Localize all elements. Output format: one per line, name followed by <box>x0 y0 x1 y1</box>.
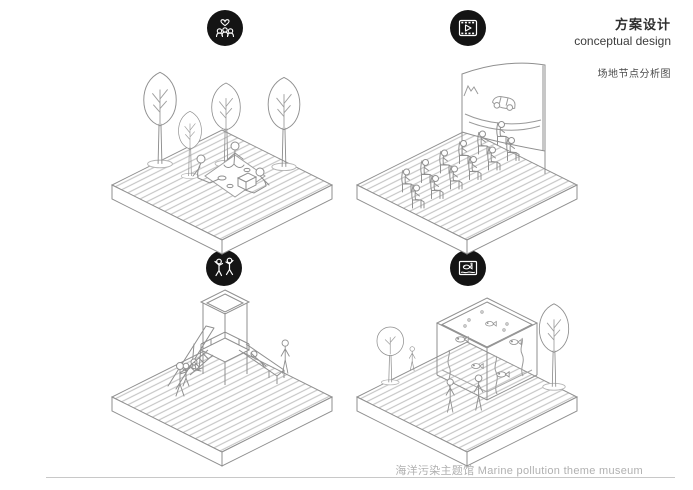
tree-right <box>539 304 568 390</box>
cinema-illustration <box>347 50 587 255</box>
page-title-en: conceptual design <box>574 34 671 48</box>
footer-rule <box>46 477 675 478</box>
diagram-type-label: 场地节点分析图 <box>574 65 671 80</box>
footer-caption: 海洋污染主题馆 Marine pollution theme museum <box>395 462 643 478</box>
picnic-illustration <box>102 50 342 255</box>
standing-adult <box>281 340 289 373</box>
page-title: 方案设计 <box>574 14 671 33</box>
aquarium-icon <box>450 250 486 286</box>
playground-illustration <box>102 282 342 472</box>
aquarium-illustration <box>347 282 587 472</box>
children-playing-icon <box>206 250 242 286</box>
film-play-icon <box>450 10 486 46</box>
header-block: 方案设计 conceptual design 场地节点分析图 <box>574 14 671 80</box>
platform <box>112 130 332 254</box>
heart-community-icon <box>207 10 243 46</box>
platform <box>357 342 577 466</box>
